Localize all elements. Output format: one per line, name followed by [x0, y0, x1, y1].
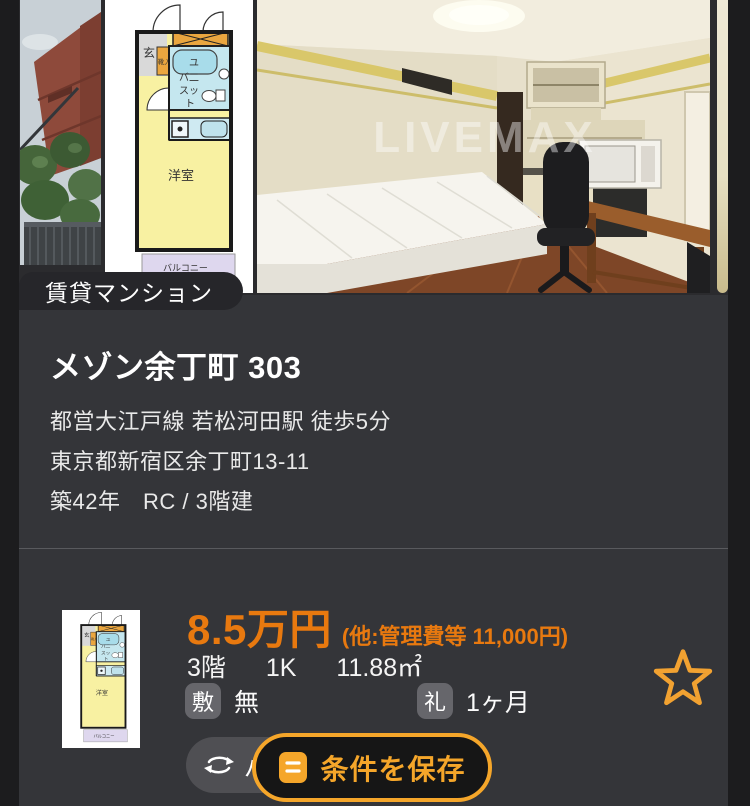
photo-gallery: LIVEMAX	[19, 0, 728, 295]
floorplan-thumbnail-art	[62, 610, 140, 748]
save-conditions-label: 条件を保存	[320, 748, 465, 788]
access-line: 都営大江戸線 若松河田駅 徒歩5分	[50, 404, 391, 436]
spec-row: 3階 1K 11.88㎡	[187, 648, 455, 684]
key-money-badge: 礼	[417, 683, 453, 719]
interior-photo-art: LIVEMAX	[257, 0, 710, 293]
floor-value: 3階	[187, 654, 226, 682]
floorplan-image[interactable]	[105, 0, 253, 293]
floorplan-art	[105, 0, 253, 293]
exterior-photo[interactable]	[20, 0, 101, 265]
property-type-badge: 賃貸マンション	[19, 272, 243, 310]
deposit-group: 敷 無	[185, 683, 259, 719]
key-money-value: 1ヶ月	[466, 683, 530, 719]
next-photo-sliver[interactable]	[717, 0, 728, 293]
area-value: 11.88㎡	[336, 654, 422, 682]
memo-icon	[278, 751, 308, 784]
deposit-badge: 敷	[185, 683, 221, 719]
section-divider	[19, 548, 728, 549]
key-money-group: 礼 1ヶ月	[417, 683, 530, 719]
listing-screen: { "colors": { "page_bg": "#1c1c1e", "car…	[0, 0, 750, 806]
star-icon	[651, 646, 715, 710]
age-structure-line: 築42年 RC / 3階建	[50, 484, 253, 516]
rent-note: (他:管理費等 11,000円)	[342, 619, 568, 651]
watermark-text: LIVEMAX	[373, 113, 597, 162]
favorite-star-button[interactable]	[651, 646, 715, 710]
property-title: メゾン余丁町 303	[50, 342, 301, 387]
layout-value: 1K	[266, 654, 297, 682]
save-conditions-button[interactable]: 条件を保存	[252, 733, 492, 802]
address-line: 東京都新宿区余丁町13-11	[50, 444, 310, 476]
exterior-photo-art	[20, 0, 101, 265]
interior-photo[interactable]: LIVEMAX	[257, 0, 710, 293]
deposit-value: 無	[234, 683, 259, 719]
floorplan-thumbnail[interactable]	[62, 610, 140, 748]
panorama-icon	[202, 752, 236, 778]
listing-card: LIVEMAX 賃貸マンション メゾン余丁町 303 都営大江戸線 若松河田駅 …	[19, 0, 728, 806]
